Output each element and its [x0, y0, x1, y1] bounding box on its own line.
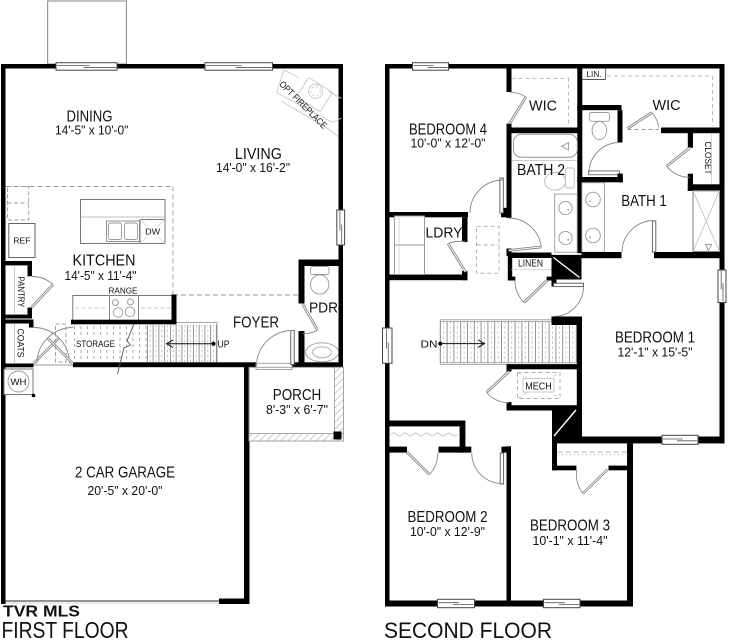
svg-text:14'-5" x 11'-4": 14'-5" x 11'-4": [65, 268, 137, 283]
svg-text:FOYER: FOYER: [233, 315, 279, 332]
svg-text:LDRY: LDRY: [426, 225, 463, 242]
svg-text:14'-5" x 10'-0": 14'-5" x 10'-0": [55, 123, 129, 138]
svg-text:UP: UP: [218, 340, 230, 351]
svg-text:8'-3" x 6'-7": 8'-3" x 6'-7": [266, 402, 328, 417]
svg-text:MECH: MECH: [525, 380, 552, 392]
svg-text:WIC: WIC: [653, 97, 681, 114]
svg-text:STORAGE: STORAGE: [76, 339, 115, 350]
svg-text:DN: DN: [421, 339, 438, 351]
svg-text:2 CAR GARAGE: 2 CAR GARAGE: [75, 465, 175, 482]
svg-text:PDR: PDR: [309, 300, 338, 317]
svg-text:10'-0" x 12'-9": 10'-0" x 12'-9": [410, 524, 485, 539]
svg-text:PANTRY: PANTRY: [15, 277, 26, 309]
svg-text:WIC: WIC: [529, 98, 557, 115]
svg-text:BATH 1: BATH 1: [621, 193, 667, 210]
svg-text:DW: DW: [145, 227, 160, 237]
svg-text:LIN.: LIN.: [587, 70, 602, 79]
svg-text:FIRST FLOOR: FIRST FLOOR: [2, 617, 129, 640]
svg-text:REF: REF: [13, 236, 30, 246]
svg-text:10'-0" x 12'-0": 10'-0" x 12'-0": [411, 135, 486, 150]
svg-text:RANGE: RANGE: [109, 285, 138, 295]
svg-text:14'-0" x 16'-2": 14'-0" x 16'-2": [216, 160, 290, 175]
svg-text:12'-1" x 15'-5": 12'-1" x 15'-5": [618, 345, 693, 360]
svg-text:20'-5" x 20'-0": 20'-5" x 20'-0": [88, 483, 163, 498]
svg-text:10'-1" x 11'-4": 10'-1" x 11'-4": [533, 533, 608, 548]
svg-text:COATS: COATS: [15, 329, 26, 358]
svg-text:BATH 2: BATH 2: [517, 162, 565, 179]
svg-text:LINEN: LINEN: [518, 259, 543, 270]
svg-text:WH: WH: [11, 377, 27, 387]
svg-text:SECOND FLOOR: SECOND FLOOR: [384, 618, 552, 640]
